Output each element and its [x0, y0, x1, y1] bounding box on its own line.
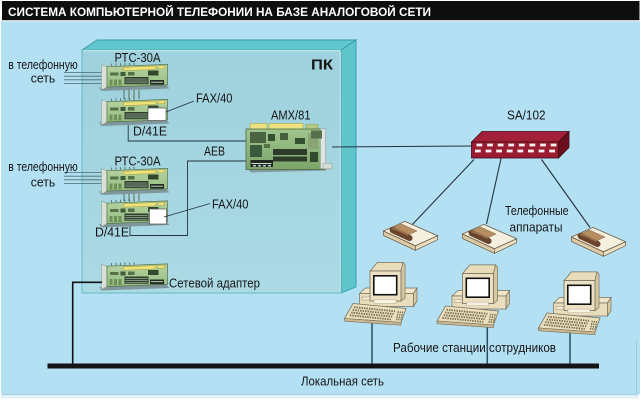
svg-text:ПК: ПК: [311, 58, 333, 74]
svg-text:аппараты: аппараты: [510, 220, 563, 235]
svg-text:FAX/40: FAX/40: [196, 91, 233, 106]
svg-text:Локальная сеть: Локальная сеть: [301, 374, 384, 389]
svg-text:Телефонные: Телефонные: [505, 203, 569, 218]
svg-text:СИСТЕМА КОМПЬЮТЕРНОЙ ТЕЛЕФОНИИ: СИСТЕМА КОМПЬЮТЕРНОЙ ТЕЛЕФОНИИ НА БАЗЕ А…: [8, 4, 431, 19]
svg-text:АЕВ: АЕВ: [204, 144, 225, 159]
svg-text:Рабочие станции сотрудников: Рабочие станции сотрудников: [393, 340, 556, 355]
svg-text:Сетевой адаптер: Сетевой адаптер: [169, 276, 260, 291]
svg-text:в телефонную: в телефонную: [8, 159, 78, 174]
svg-text:D/41E: D/41E: [133, 124, 167, 139]
svg-text:AMX/81: AMX/81: [271, 108, 311, 123]
svg-text:FAX/40: FAX/40: [212, 197, 249, 212]
svg-text:SA/102: SA/102: [507, 108, 546, 123]
svg-text:РТС-30А: РТС-30А: [115, 50, 161, 65]
svg-text:D/41E: D/41E: [95, 225, 129, 240]
svg-text:сеть: сеть: [31, 71, 56, 86]
svg-text:РТС-30А: РТС-30А: [115, 154, 161, 169]
svg-text:сеть: сеть: [31, 175, 56, 190]
